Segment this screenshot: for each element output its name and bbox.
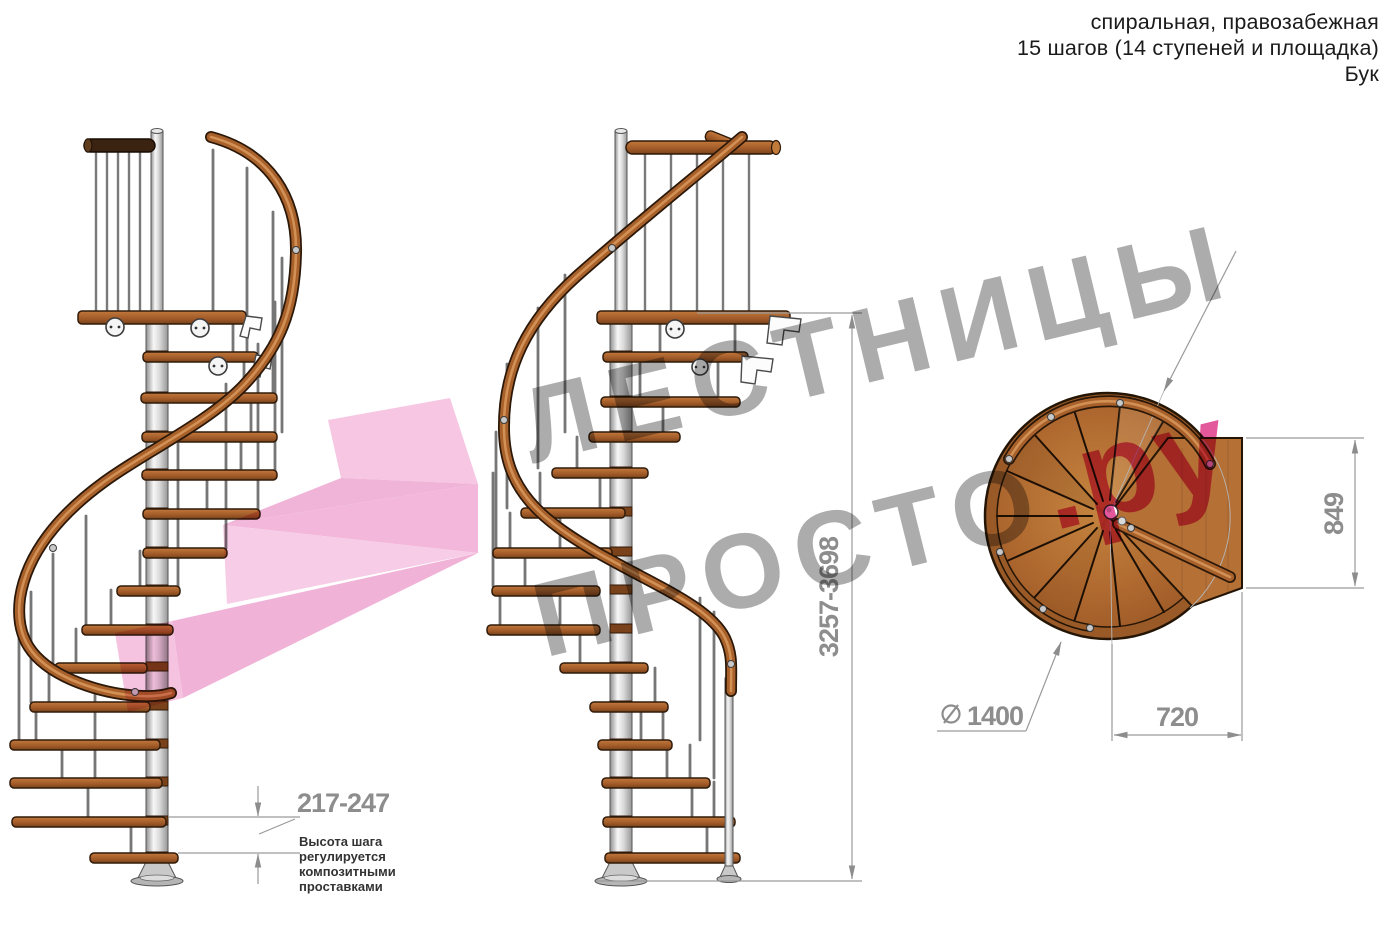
leader-handrail — [1164, 251, 1236, 391]
step-height-label: 217-247 — [297, 788, 389, 818]
dimension-landing-depth: 849 — [1246, 438, 1364, 588]
landing-handrail-dark — [84, 139, 155, 152]
landing-depth-label: 849 — [1319, 492, 1349, 535]
step-height-note: Высота шага регулируется композитными пр… — [299, 834, 396, 894]
spec-header: спиральная, правозабежная 15 шагов (14 с… — [1017, 9, 1379, 87]
diameter-label: 1400 — [967, 701, 1023, 731]
steps-front — [487, 311, 790, 863]
svg-text:композитными: композитными — [299, 864, 396, 879]
drawing-canvas: 3257-3698 217-247 Высота шага регулирует… — [0, 0, 1400, 943]
diameter-symbol-icon — [943, 705, 960, 723]
spec-material: Бук — [1017, 61, 1379, 87]
dimension-diameter: 1400 — [937, 642, 1061, 731]
side-view-left — [10, 129, 300, 887]
svg-text:Высота шага: Высота шага — [299, 834, 383, 849]
side-view-front — [487, 129, 801, 887]
technical-drawing: 3257-3698 217-247 Высота шага регулирует… — [0, 0, 1400, 943]
newel-post-front — [717, 678, 741, 883]
landing-width-label: 720 — [1156, 702, 1198, 732]
spec-steps: 15 шагов (14 ступеней и площадка) — [1017, 35, 1379, 61]
svg-text:регулируется: регулируется — [299, 849, 386, 864]
mount-discs-front — [666, 316, 801, 384]
plan-view — [985, 391, 1242, 648]
dimension-step-height: 217-247 Высота шага регулируется компози… — [168, 786, 396, 894]
landing-board — [78, 311, 246, 324]
total-height-label: 3257-3698 — [814, 536, 844, 657]
spec-type: спиральная, правозабежная — [1017, 9, 1379, 35]
top-handrail-front — [626, 129, 781, 154]
svg-text:проставками: проставками — [299, 879, 383, 894]
landing-railing-left — [84, 139, 155, 311]
